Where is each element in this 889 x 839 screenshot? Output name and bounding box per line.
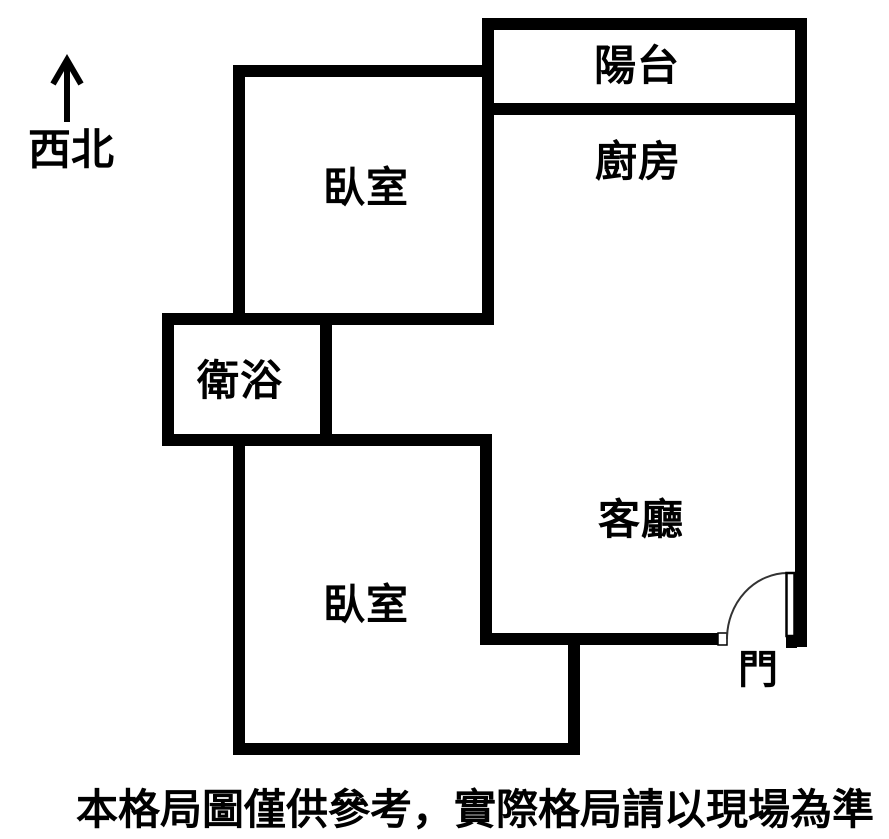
wall-balcony-top — [482, 18, 807, 30]
room-label-living-room: 客廳 — [598, 499, 684, 541]
room-label-balcony: 陽台 — [594, 45, 680, 87]
wall-bedroom-bottom-left — [233, 434, 245, 755]
disclaimer-text: 本格局圖僅供參考，實際格局請以現場為準 — [76, 789, 874, 831]
wall-bedroom-bottom-bottom — [233, 743, 580, 755]
room-label-bathroom: 衛浴 — [197, 360, 283, 402]
compass-direction-label: 西北 — [28, 130, 114, 173]
door-panel — [787, 573, 795, 636]
door-jamb-hinge — [786, 636, 797, 648]
floor-plan: 西北 陽台 廚房 臥室 衛浴 客廳 臥室 門 本格局圖僅供參考，實際格局請以現場… — [0, 0, 889, 839]
room-label-bedroom-bottom: 臥室 — [323, 584, 409, 626]
door-label: 門 — [738, 650, 778, 690]
room-label-bedroom-top: 臥室 — [323, 167, 409, 209]
door-jamb-latch — [718, 633, 727, 645]
wall-kitchen-left — [482, 18, 494, 325]
wall-balcony-divider — [494, 103, 795, 115]
floor-plan-drawing — [0, 0, 889, 839]
wall-bathroom-top — [162, 313, 494, 325]
wall-living-left — [480, 434, 492, 645]
wall-bathroom-right — [320, 325, 332, 446]
wall-right-outer — [795, 18, 807, 647]
door-swing-arc-icon — [727, 573, 788, 639]
wall-bathroom-bottom — [162, 434, 492, 446]
wall-bedroom-top-left — [233, 65, 245, 325]
wall-bathroom-left — [162, 313, 174, 446]
wall-bedroom-bottom-right — [568, 633, 580, 755]
wall-living-bottom — [480, 633, 718, 645]
wall-bedroom-top-top — [233, 65, 482, 77]
entry-door — [718, 573, 797, 648]
north-arrow-icon — [53, 60, 81, 122]
room-label-kitchen: 廚房 — [595, 141, 681, 183]
